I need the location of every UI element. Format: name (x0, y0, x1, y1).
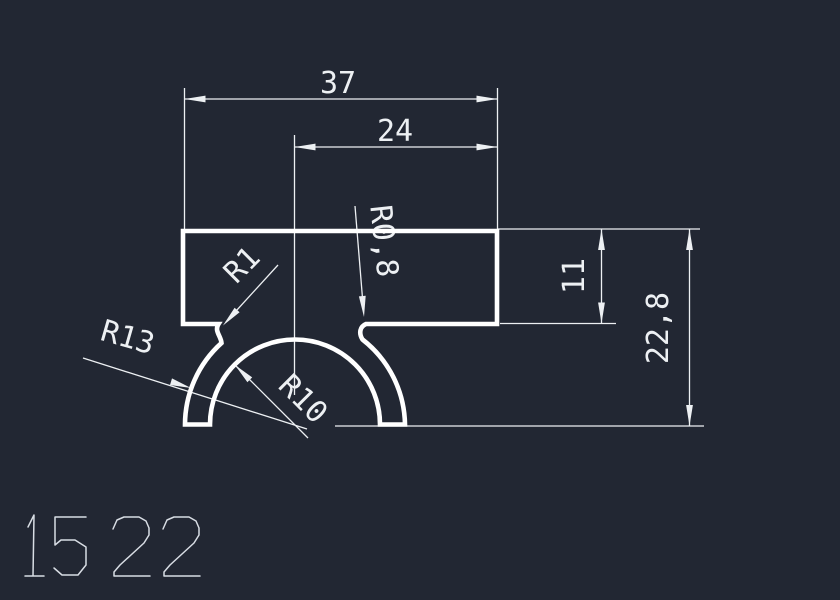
part-number-glyphs (25, 515, 200, 576)
part-number: 1522 (25, 502, 218, 595)
dim-label-rect-height: 11 (557, 258, 592, 294)
radius-label-fillet-right: R0,8 (362, 203, 404, 279)
arrowhead-icon (235, 365, 252, 382)
radius-label-fillet-left: R1 (217, 240, 267, 290)
arrowhead-top-icon (598, 229, 605, 250)
cad-drawing: 37 24 11 22,8 R1 R0,8 (0, 0, 840, 600)
leader-radius-fillet-left: R1 (217, 240, 278, 325)
arrowhead-bottom-icon (598, 303, 605, 324)
dim-label-total-width: 37 (320, 66, 356, 101)
dim-label-total-height: 22,8 (641, 292, 676, 364)
leader-radius-fillet-right: R0,8 (355, 203, 405, 317)
leader-radius-outer: R13 (83, 314, 307, 429)
arrowhead-left-icon (185, 96, 206, 103)
cad-viewport: 37 24 11 22,8 R1 R0,8 (0, 0, 840, 600)
radius-label-inner: R10 (271, 368, 334, 431)
arrowhead-left-icon (295, 144, 316, 151)
leader-line (355, 206, 363, 308)
radius-label-outer: R13 (97, 314, 159, 363)
arrowhead-top-icon (686, 229, 693, 250)
arrowhead-right-icon (477, 144, 498, 151)
arrowhead-icon (223, 308, 240, 326)
arrowhead-bottom-icon (686, 405, 693, 426)
arrowhead-icon (359, 296, 366, 317)
dim-label-offset-width: 24 (377, 114, 413, 149)
leader-radius-inner: R10 (235, 365, 334, 438)
arrowhead-right-icon (477, 96, 498, 103)
